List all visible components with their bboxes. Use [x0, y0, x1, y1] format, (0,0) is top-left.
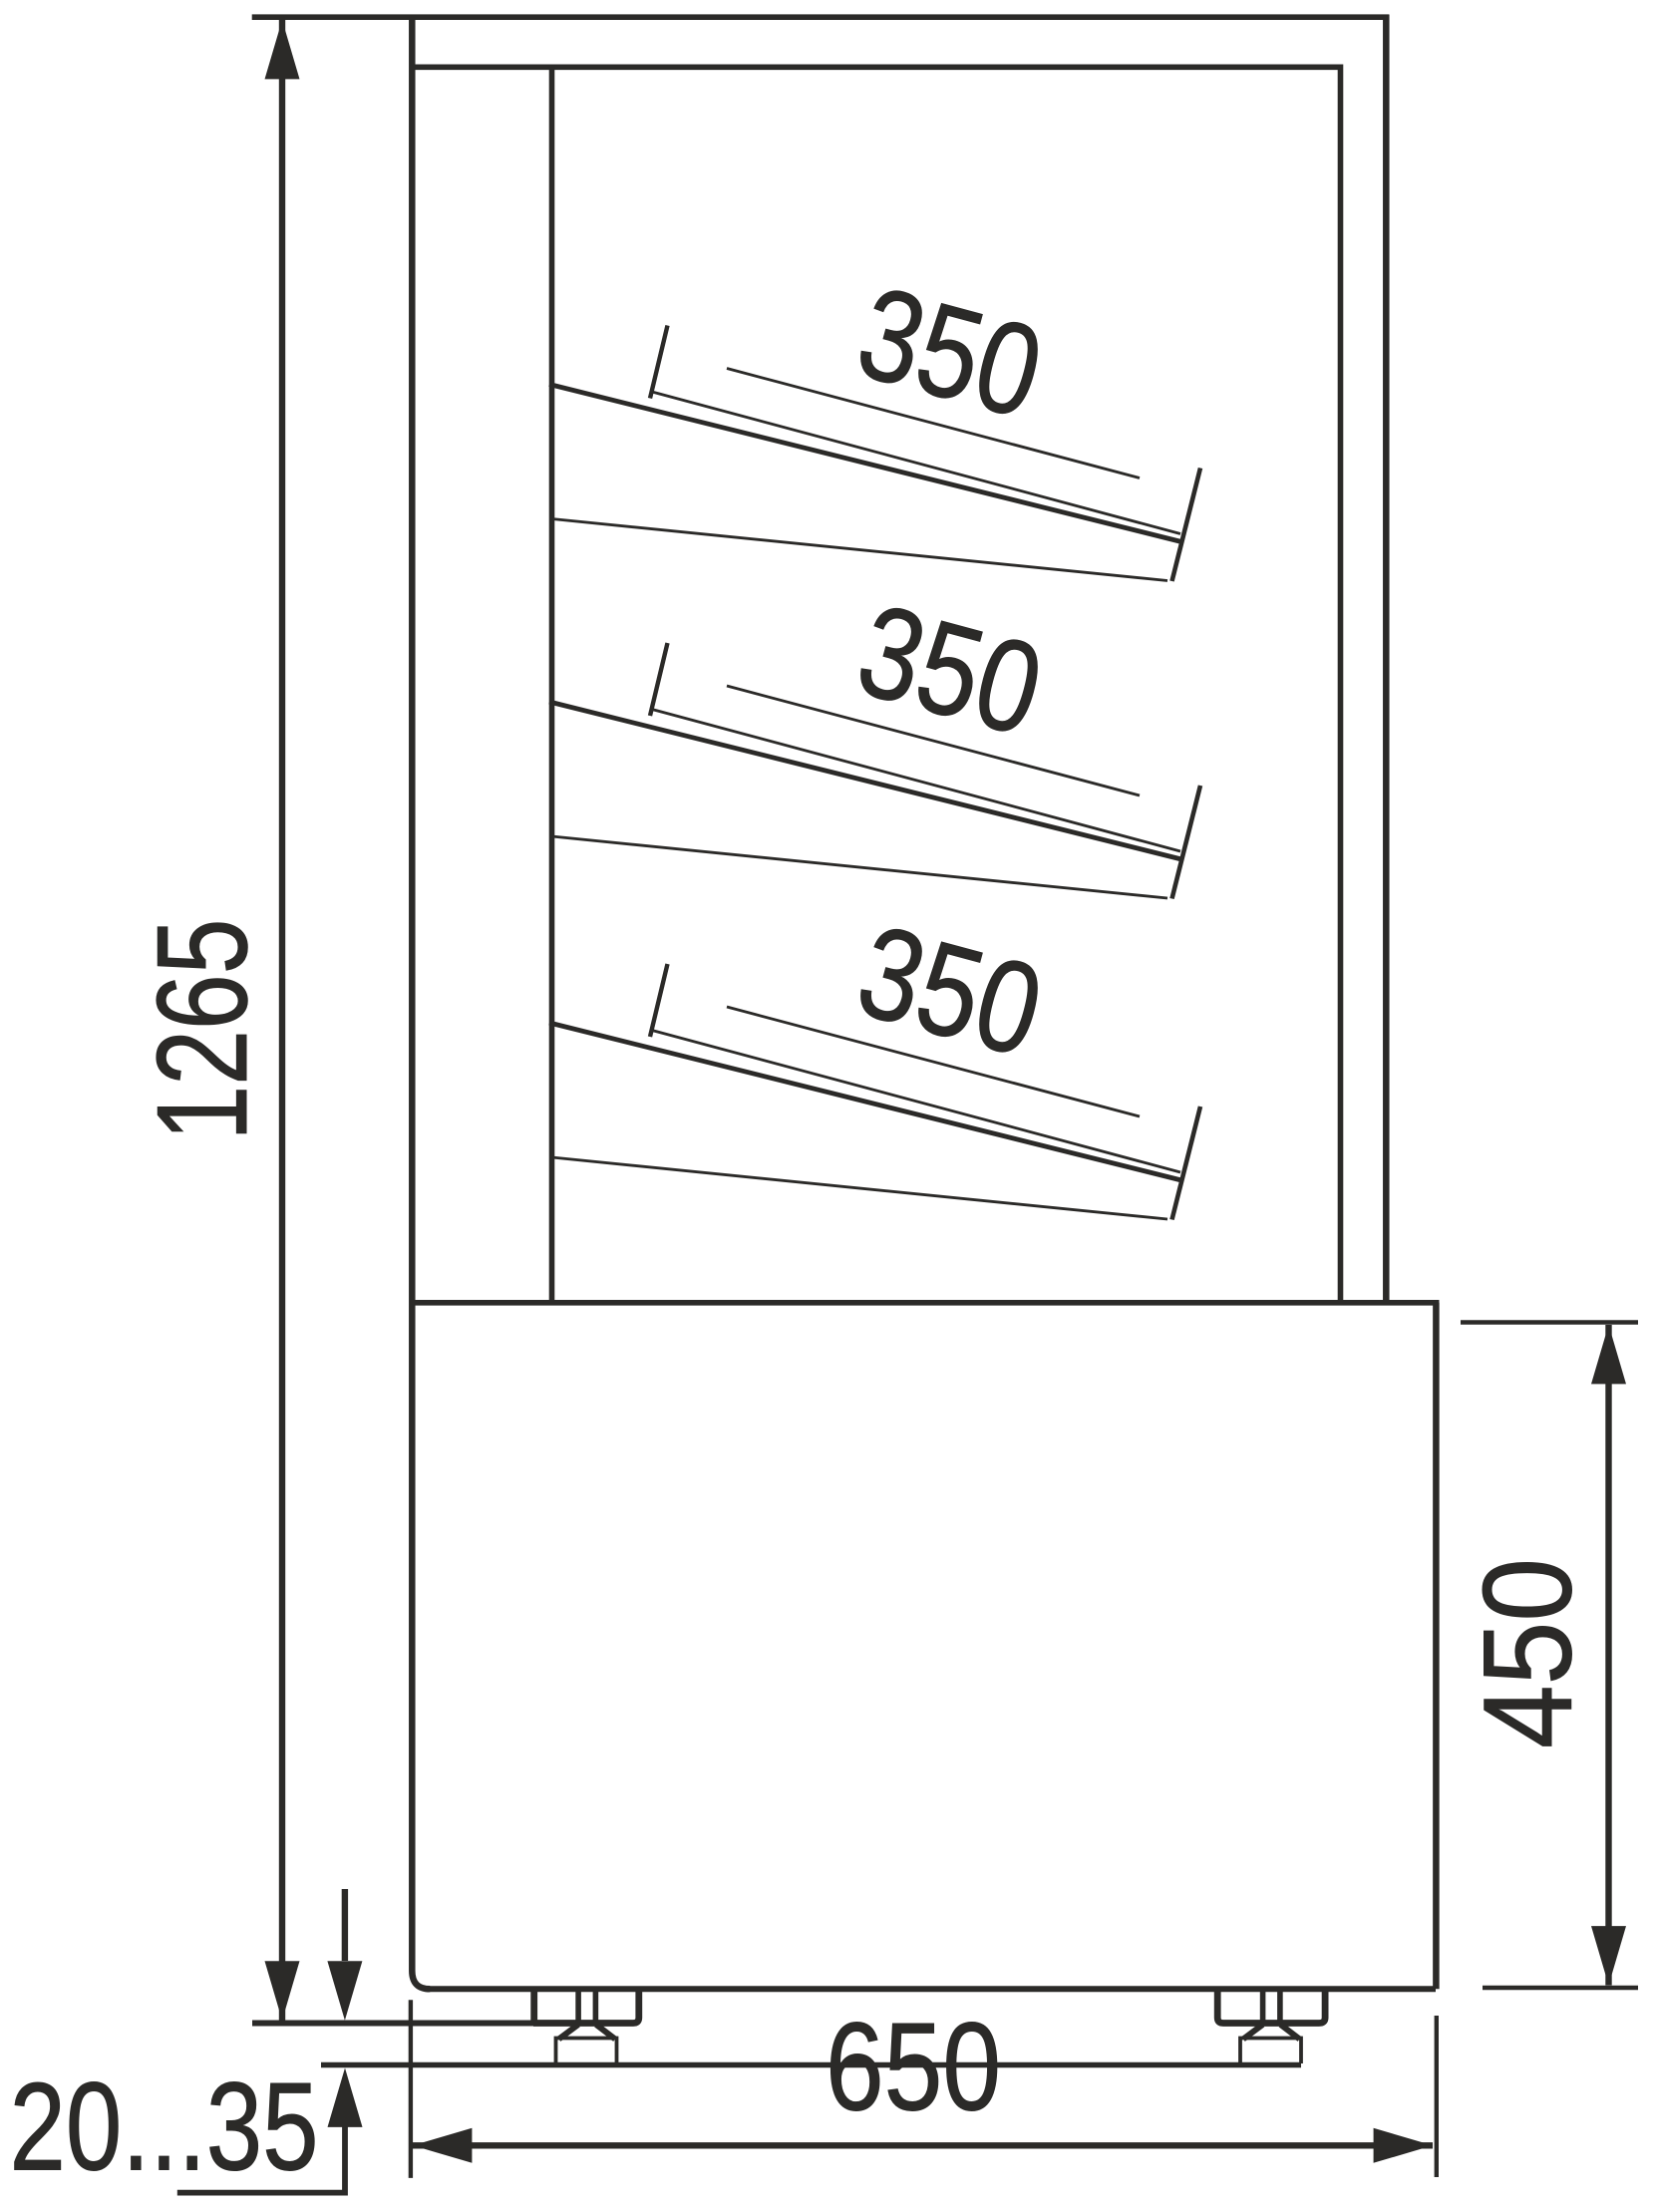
svg-text:350: 350: [844, 896, 1057, 1085]
svg-text:20...35: 20...35: [10, 2058, 319, 2197]
svg-text:350: 350: [844, 575, 1057, 764]
svg-text:1265: 1265: [131, 919, 274, 1141]
svg-text:450: 450: [1458, 1558, 1598, 1748]
svg-text:650: 650: [826, 1998, 1001, 2136]
svg-text:350: 350: [844, 258, 1057, 447]
